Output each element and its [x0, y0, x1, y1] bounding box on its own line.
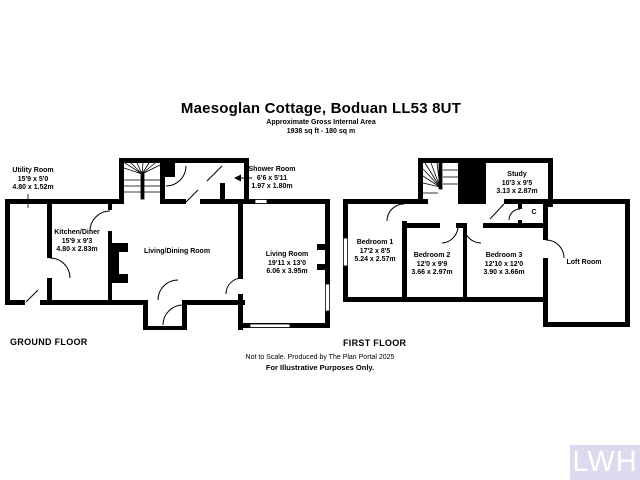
room-label-study: Study 10'3 x 9'5 3.13 x 2.87m: [496, 171, 537, 197]
room-label-bedroom-2: Bedroom 2 12'0 x 9'9 3.66 x 2.97m: [411, 252, 452, 278]
room-label-living-dining: Living/Dining Room: [144, 248, 210, 257]
room-label-loft-room: Loft Room: [567, 259, 602, 268]
room-label-bedroom-3: Bedroom 3 12'10 x 12'0 3.90 x 3.66m: [483, 252, 524, 278]
room-label-shower-room: Shower Room 6'6 x 5'11 1.97 x 1.80m: [248, 166, 295, 192]
room-label-bedroom-1: Bedroom 1 17'2 x 8'5 5.24 x 2.57m: [354, 239, 395, 265]
footer-illustrative: For Illustrative Purposes Only.: [266, 363, 374, 372]
first-floor-window: [344, 238, 348, 266]
watermark-logo: LWH: [570, 445, 640, 480]
first-floor-doors: [387, 204, 564, 258]
ground-floor-label: GROUND FLOOR: [10, 337, 88, 347]
ground-floor-stairs-icon: [124, 163, 160, 199]
first-floor-label: FIRST FLOOR: [343, 338, 406, 348]
room-label-cupboard: C: [531, 209, 536, 218]
room-label-kitchen-diner: Kitchen/Diner 15'9 x 9'3 4.80 x 2.83m: [54, 229, 100, 255]
first-floor-stairs-icon: [423, 163, 458, 193]
room-label-utility: Utility Room 15'9 x 5'0 4.80 x 1.52m: [12, 167, 53, 193]
room-label-living-room: Living Room 19'11 x 13'0 6.06 x 3.95m: [266, 251, 308, 277]
footer-disclaimer: Not to Scale. Produced by The Plan Porta…: [246, 354, 395, 361]
floor-plan-page: Maesoglan Cottage, Boduan LL53 8UT Appro…: [0, 0, 640, 480]
